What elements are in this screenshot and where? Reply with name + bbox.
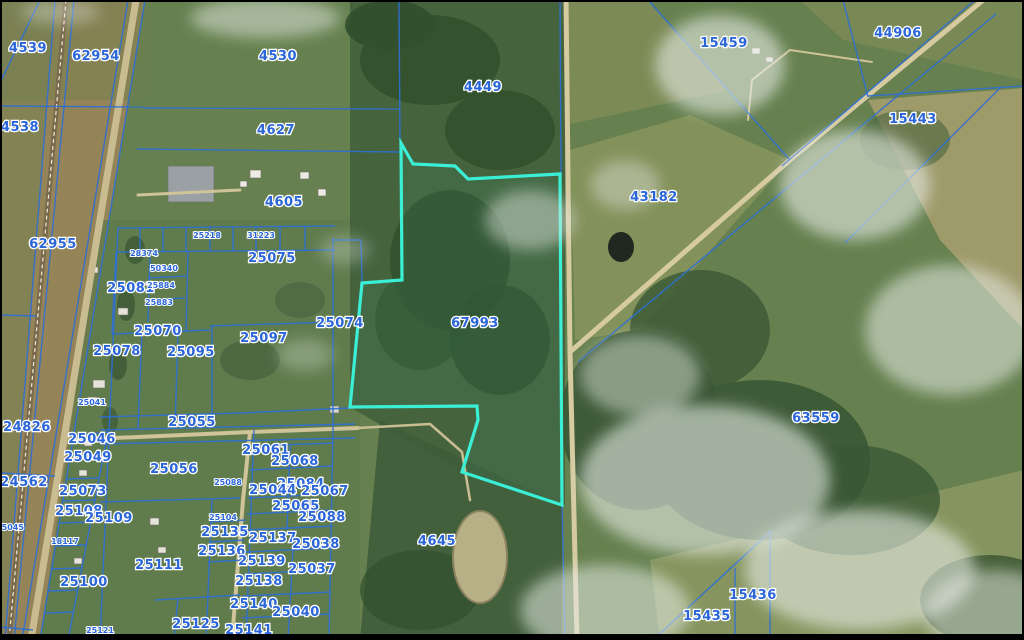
parcel-label-18117[interactable]: 18117: [51, 537, 79, 546]
parcel-label-25078[interactable]: 25078: [93, 344, 141, 359]
parcel-label-25111[interactable]: 25111: [135, 558, 183, 573]
parcel-label-25038[interactable]: 25038: [292, 537, 340, 552]
parcel-label-25883[interactable]: 25883: [145, 298, 173, 307]
parcel-label-43182[interactable]: 43182: [630, 190, 678, 205]
parcel-label-25095[interactable]: 25095: [167, 345, 215, 360]
parcel-4449-east: [560, 0, 561, 174]
stock-pond: [453, 511, 507, 603]
ladder-rung: [63, 500, 95, 501]
parcel-label-25040[interactable]: 25040: [272, 605, 320, 620]
parcel-label-15435[interactable]: 15435: [683, 609, 731, 624]
parcel-label-25140[interactable]: 25140: [230, 597, 278, 612]
parcel-label-25125[interactable]: 25125: [172, 617, 220, 632]
parcel-label-25121[interactable]: 25121: [86, 626, 114, 635]
ladder-rung: [67, 478, 99, 479]
parcel-label-25884[interactable]: 25884: [147, 281, 175, 290]
parcel-label-25138[interactable]: 25138: [235, 574, 283, 589]
barn: [168, 166, 214, 202]
parcel-label-25044[interactable]: 25044: [249, 483, 297, 498]
parcel-label-25037[interactable]: 25037: [288, 562, 336, 577]
ladder-rung: [48, 590, 78, 591]
parcel-label-25097[interactable]: 25097: [240, 331, 288, 346]
parcel-label-25046[interactable]: 25046: [68, 432, 116, 447]
parcel-map-canvas[interactable]: 4539629544530444915459449064538154434627…: [0, 0, 1024, 640]
parcel-label-4449[interactable]: 4449: [464, 80, 502, 95]
parcel-label-25045[interactable]: 25045: [0, 523, 24, 532]
parcel-label-25056[interactable]: 25056: [150, 462, 198, 477]
parcel-label-62955[interactable]: 62955: [29, 237, 77, 252]
parcel-label-25049[interactable]: 25049: [64, 450, 112, 465]
parcel-label-25055[interactable]: 25055: [168, 415, 216, 430]
parcel-label-4538[interactable]: 4538: [1, 120, 39, 135]
parcel-label-25088[interactable]: 25088: [298, 510, 346, 525]
parcel-label-25075[interactable]: 25075: [248, 251, 296, 266]
parcel-label-15459[interactable]: 15459: [700, 36, 748, 51]
parcel-label-25073[interactable]: 25073: [59, 484, 107, 499]
parcel-label-25218[interactable]: 25218: [193, 231, 221, 240]
parcel-label-24826[interactable]: 24826: [3, 420, 51, 435]
parcel-label-31223[interactable]: 31223: [247, 231, 275, 240]
parcel-label-25100[interactable]: 25100: [60, 575, 108, 590]
parcel-map-viewport[interactable]: 4539629544530444915459449064538154434627…: [0, 0, 1024, 640]
parcel-label-25068[interactable]: 25068: [271, 454, 319, 469]
parcel-label-4627[interactable]: 4627: [257, 123, 295, 138]
parcel-label-4539[interactable]: 4539: [9, 41, 47, 56]
parcel-label-62954[interactable]: 62954: [72, 49, 120, 64]
parcel-label-4645[interactable]: 4645: [418, 534, 456, 549]
parcel-label-44906[interactable]: 44906: [874, 26, 922, 41]
parcel-label-4530[interactable]: 4530: [259, 49, 297, 64]
parcel-label-25070[interactable]: 25070: [134, 324, 182, 339]
parcel-label-25074[interactable]: 25074: [316, 316, 364, 331]
parcel-label-25104[interactable]: 25104: [209, 513, 237, 522]
parcel-label-15443[interactable]: 15443: [889, 112, 937, 127]
parcel-4449-west: [399, 0, 400, 143]
parcel-label-25067[interactable]: 25067: [301, 484, 349, 499]
parcel-label-25109[interactable]: 25109: [85, 511, 133, 526]
ladder-rung: [52, 568, 82, 569]
parcel-label-25135[interactable]: 25135: [201, 525, 249, 540]
parcel-label-28374[interactable]: 28374: [130, 249, 158, 258]
parcel-4627-north: [143, 108, 399, 109]
boundary-4539-4538: [0, 106, 143, 107]
parcel-label-25137[interactable]: 25137: [249, 531, 297, 546]
small-dark-pond: [608, 232, 634, 262]
parcel-label-15436[interactable]: 15436: [729, 588, 777, 603]
parcel-label-4605[interactable]: 4605: [265, 195, 303, 210]
parcel-label-25041[interactable]: 25041: [78, 398, 106, 407]
parcel-label-24562[interactable]: 24562: [0, 475, 48, 490]
parcel-label-25139[interactable]: 25139: [238, 554, 286, 569]
parcel-label-25088[interactable]: 25088: [214, 478, 242, 487]
ladder-rung: [45, 612, 73, 613]
parcel-label-50340[interactable]: 50340: [150, 264, 178, 273]
parcel-label-67993[interactable]: 67993: [451, 316, 499, 331]
parcel-label-63559[interactable]: 63559: [792, 411, 840, 426]
